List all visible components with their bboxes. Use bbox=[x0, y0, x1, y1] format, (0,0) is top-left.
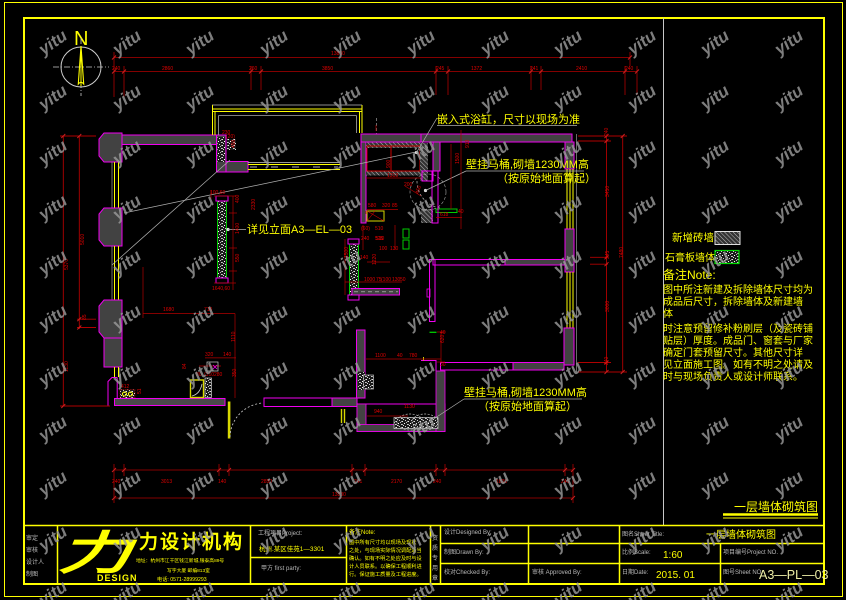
svg-text:图中所注新建及拆除墙体尺寸均为: 图中所注新建及拆除墙体尺寸均为 bbox=[663, 283, 813, 296]
svg-text:7480: 7480 bbox=[619, 247, 625, 258]
svg-text:质: 质 bbox=[432, 544, 438, 552]
svg-text:345: 345 bbox=[605, 250, 611, 259]
svg-text:100,60: 100,60 bbox=[210, 190, 226, 196]
svg-text:(100: (100 bbox=[381, 277, 391, 283]
svg-text:1130: 1130 bbox=[404, 404, 415, 410]
svg-text:350: 350 bbox=[232, 368, 238, 377]
svg-text:1313: 1313 bbox=[387, 173, 398, 179]
svg-text:用: 用 bbox=[432, 565, 438, 572]
svg-text:910: 910 bbox=[465, 139, 471, 148]
svg-text:(60): (60) bbox=[361, 226, 370, 232]
svg-text:84: 84 bbox=[182, 363, 188, 369]
svg-text:3850: 3850 bbox=[322, 66, 333, 72]
svg-text:1640,60: 1640,60 bbox=[212, 286, 230, 292]
svg-text:241: 241 bbox=[530, 66, 539, 72]
svg-text:510: 510 bbox=[376, 236, 385, 242]
svg-text:245: 245 bbox=[436, 66, 445, 72]
svg-text:140: 140 bbox=[223, 352, 232, 358]
svg-text:详见立面A3—EL—03: 详见立面A3—EL—03 bbox=[247, 222, 352, 236]
svg-text:240: 240 bbox=[604, 356, 610, 365]
svg-text:240: 240 bbox=[112, 66, 121, 72]
svg-text:审核: 审核 bbox=[26, 546, 38, 554]
svg-text:制图: 制图 bbox=[26, 570, 38, 578]
svg-text:行。保证施工质量及工程进度。: 行。保证施工质量及工程进度。 bbox=[349, 570, 422, 578]
svg-text:一层墙体砌筑图: 一层墙体砌筑图 bbox=[734, 499, 818, 514]
svg-text:2860: 2860 bbox=[162, 66, 173, 72]
svg-text:3013: 3013 bbox=[161, 479, 172, 485]
svg-text:2015. 01: 2015. 01 bbox=[656, 570, 695, 581]
svg-text:450: 450 bbox=[231, 139, 237, 148]
svg-text:1400: 1400 bbox=[235, 223, 241, 234]
svg-text:240: 240 bbox=[625, 66, 634, 72]
svg-text:900: 900 bbox=[386, 159, 392, 168]
svg-text:620: 620 bbox=[440, 334, 446, 343]
svg-text:1680: 1680 bbox=[163, 307, 174, 313]
svg-text:贴层）厚度。成品门、窗套与厂家: 贴层）厚度。成品门、窗套与厂家 bbox=[663, 334, 813, 347]
svg-text:（按原始地面算起）: （按原始地面算起） bbox=[478, 399, 577, 413]
svg-text:制图Drawn By:: 制图Drawn By: bbox=[444, 548, 484, 556]
svg-text:计人员联系。以确保工程顺利进: 计人员联系。以确保工程顺利进 bbox=[349, 562, 422, 570]
svg-text:1372: 1372 bbox=[471, 66, 482, 72]
svg-text:240: 240 bbox=[604, 127, 610, 136]
svg-text:确定门套预留尺寸。其他尺寸详: 确定门套预留尺寸。其他尺寸详 bbox=[663, 346, 803, 359]
svg-text:专: 专 bbox=[432, 554, 438, 562]
svg-text:51: 51 bbox=[137, 388, 143, 394]
svg-text:940: 940 bbox=[374, 409, 383, 415]
svg-text:设计人: 设计人 bbox=[26, 558, 44, 566]
svg-text:1220: 1220 bbox=[372, 254, 378, 265]
svg-text:章: 章 bbox=[432, 574, 438, 582]
svg-text:甲方 first party:: 甲方 first party: bbox=[261, 564, 301, 572]
svg-text:1:60: 1:60 bbox=[663, 550, 683, 561]
svg-text:1100: 1100 bbox=[375, 353, 386, 359]
svg-text:写字大厦 邮编813室: 写字大厦 邮编813室 bbox=[167, 567, 210, 574]
svg-text:确认。如有不明之处应及时与设: 确认。如有不明之处应及时与设 bbox=[349, 554, 422, 562]
svg-text:140: 140 bbox=[218, 479, 227, 485]
svg-text:壁挂马桶,砌墙1230MM高: 壁挂马桶,砌墙1230MM高 bbox=[464, 385, 587, 399]
svg-text:550: 550 bbox=[235, 253, 241, 262]
svg-text:40: 40 bbox=[397, 353, 403, 359]
svg-text:260: 260 bbox=[249, 66, 258, 72]
svg-text:1500: 1500 bbox=[455, 153, 461, 164]
svg-text:嵌入式浴缸，尺寸以现场为准: 嵌入式浴缸，尺寸以现场为准 bbox=[437, 112, 580, 126]
svg-text:校对Checked By:: 校对Checked By: bbox=[444, 568, 490, 576]
svg-text:2410: 2410 bbox=[576, 66, 587, 72]
svg-text:（按原始地面算起）: （按原始地面算起） bbox=[497, 171, 596, 185]
svg-text:新增砖墙: 新增砖墙 bbox=[672, 231, 714, 244]
svg-text:30: 30 bbox=[440, 362, 446, 368]
svg-text:地址：杭州市江干区钱江新城,银泰高89号: 地址：杭州市江干区钱江新城,银泰高89号 bbox=[136, 557, 224, 564]
svg-text:图号Sheet NO:: 图号Sheet NO: bbox=[723, 569, 763, 576]
svg-text:1110: 1110 bbox=[231, 331, 237, 342]
svg-text:100: 100 bbox=[379, 246, 388, 252]
svg-text:40: 40 bbox=[458, 209, 464, 215]
svg-text:成品后尺寸，拆除墙体及新建墙: 成品后尺寸，拆除墙体及新建墙 bbox=[663, 295, 803, 308]
svg-text:400: 400 bbox=[235, 194, 241, 203]
svg-text:320: 320 bbox=[382, 203, 391, 209]
svg-text:审核 Approved By:: 审核 Approved By: bbox=[532, 568, 582, 576]
svg-text:618: 618 bbox=[440, 212, 449, 218]
svg-text:2170: 2170 bbox=[391, 479, 402, 485]
svg-text:5010: 5010 bbox=[80, 234, 86, 245]
svg-text:580: 580 bbox=[368, 203, 377, 209]
svg-text:85: 85 bbox=[82, 314, 88, 320]
svg-text:项目编号Project NO.: 项目编号Project NO. bbox=[723, 548, 778, 556]
svg-text:780: 780 bbox=[409, 353, 418, 359]
svg-text:1000: 1000 bbox=[364, 277, 375, 283]
svg-text:230: 230 bbox=[222, 130, 231, 136]
svg-text:3000: 3000 bbox=[605, 301, 611, 312]
svg-text:体: 体 bbox=[663, 308, 673, 320]
svg-text:日期Date:: 日期Date: bbox=[622, 568, 649, 576]
svg-text:240: 240 bbox=[361, 236, 370, 242]
svg-text:130: 130 bbox=[390, 246, 399, 252]
svg-text:50: 50 bbox=[400, 277, 406, 283]
svg-text:85: 85 bbox=[392, 203, 398, 209]
svg-text:510: 510 bbox=[375, 226, 384, 232]
svg-text:200: 200 bbox=[404, 182, 413, 188]
svg-text:3450: 3450 bbox=[605, 186, 611, 197]
